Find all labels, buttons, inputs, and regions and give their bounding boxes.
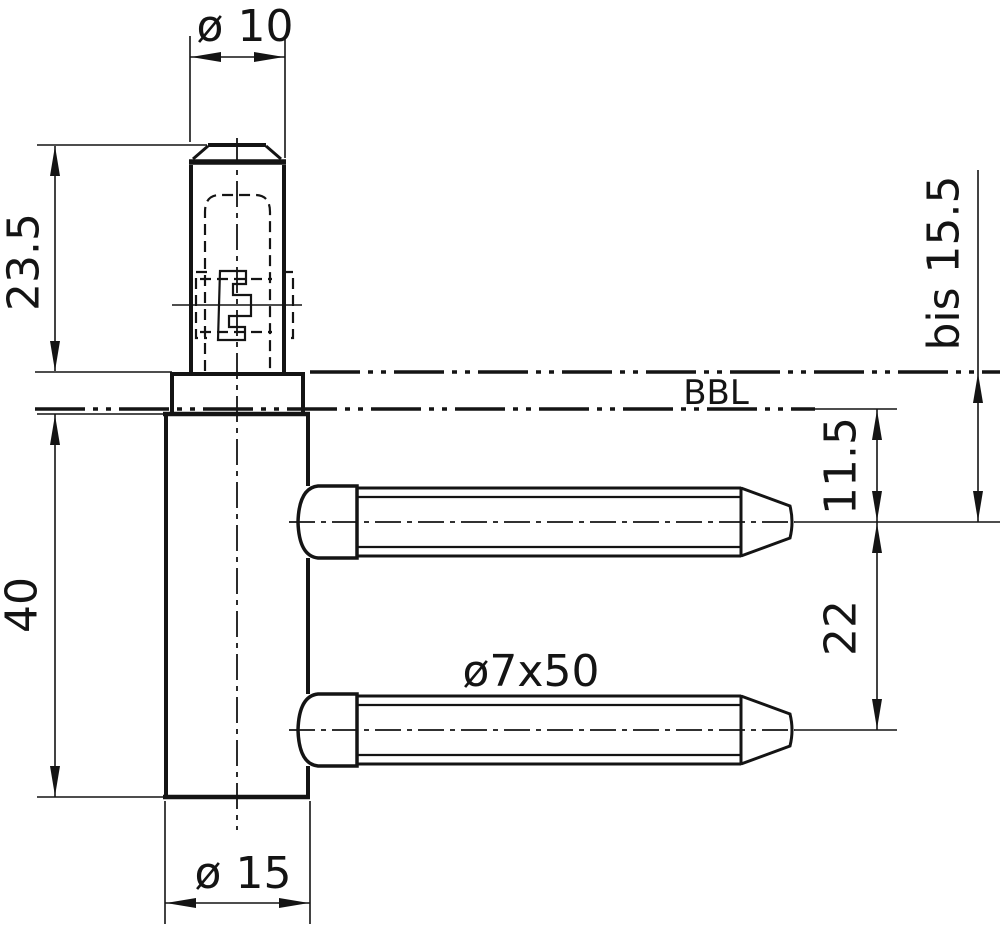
dim-sleeve-length-text: 40 [0, 577, 48, 633]
dim-pin-height: 23.5 [0, 145, 207, 371]
screw-spec-label: ø7x50 [463, 646, 600, 697]
dim-bbl-to-first-screw-text: 11.5 [816, 417, 867, 515]
dim-screw-positions: 11.5 22 [812, 409, 897, 730]
dim-arrow-down [50, 341, 60, 371]
dim-sleeve-length-extensions [37, 414, 163, 797]
dim-arrow-right [279, 898, 309, 908]
wood-screw-2 [298, 694, 792, 766]
dim-arrow-down [872, 699, 882, 729]
dim-arrow-up [872, 410, 882, 440]
centerlines [237, 138, 1000, 830]
hinge-frame-part-drawing: ø 10 23.5 40 ø 15 11.5 22 [0, 0, 1000, 927]
dim-arrow-up [50, 146, 60, 176]
dim-sleeve-diameter-text: ø 15 [195, 848, 292, 899]
dim-pin-diameter-text: ø 10 [197, 1, 294, 52]
dim-sleeve-length: 40 [0, 414, 163, 797]
dim-pin-diameter: ø 10 [190, 1, 293, 158]
wood-screw-1 [298, 486, 792, 558]
dim-screw-spacing-text: 22 [816, 600, 867, 656]
dim-arrow-up [50, 415, 60, 445]
dim-arrow-right [254, 52, 284, 62]
reference-lines [35, 372, 1000, 409]
dim-arrow-up [973, 373, 983, 403]
dim-arrow-down [872, 491, 882, 521]
dim-arrow-left [166, 898, 196, 908]
dim-arrow-down [50, 766, 60, 796]
dim-arrow-up [872, 523, 882, 553]
dim-arrow-left [191, 52, 221, 62]
dim-arrow-down [973, 491, 983, 521]
bbl-label: BBL [683, 373, 749, 413]
annotations: BBL ø7x50 [463, 373, 749, 697]
technical-drawing-page: ø 10 23.5 40 ø 15 11.5 22 [0, 0, 1000, 927]
dim-pin-height-text: 23.5 [0, 213, 50, 311]
dim-adjustment-height: bis 15.5 [919, 170, 984, 522]
dim-adjustment-height-text: bis 15.5 [919, 175, 970, 350]
